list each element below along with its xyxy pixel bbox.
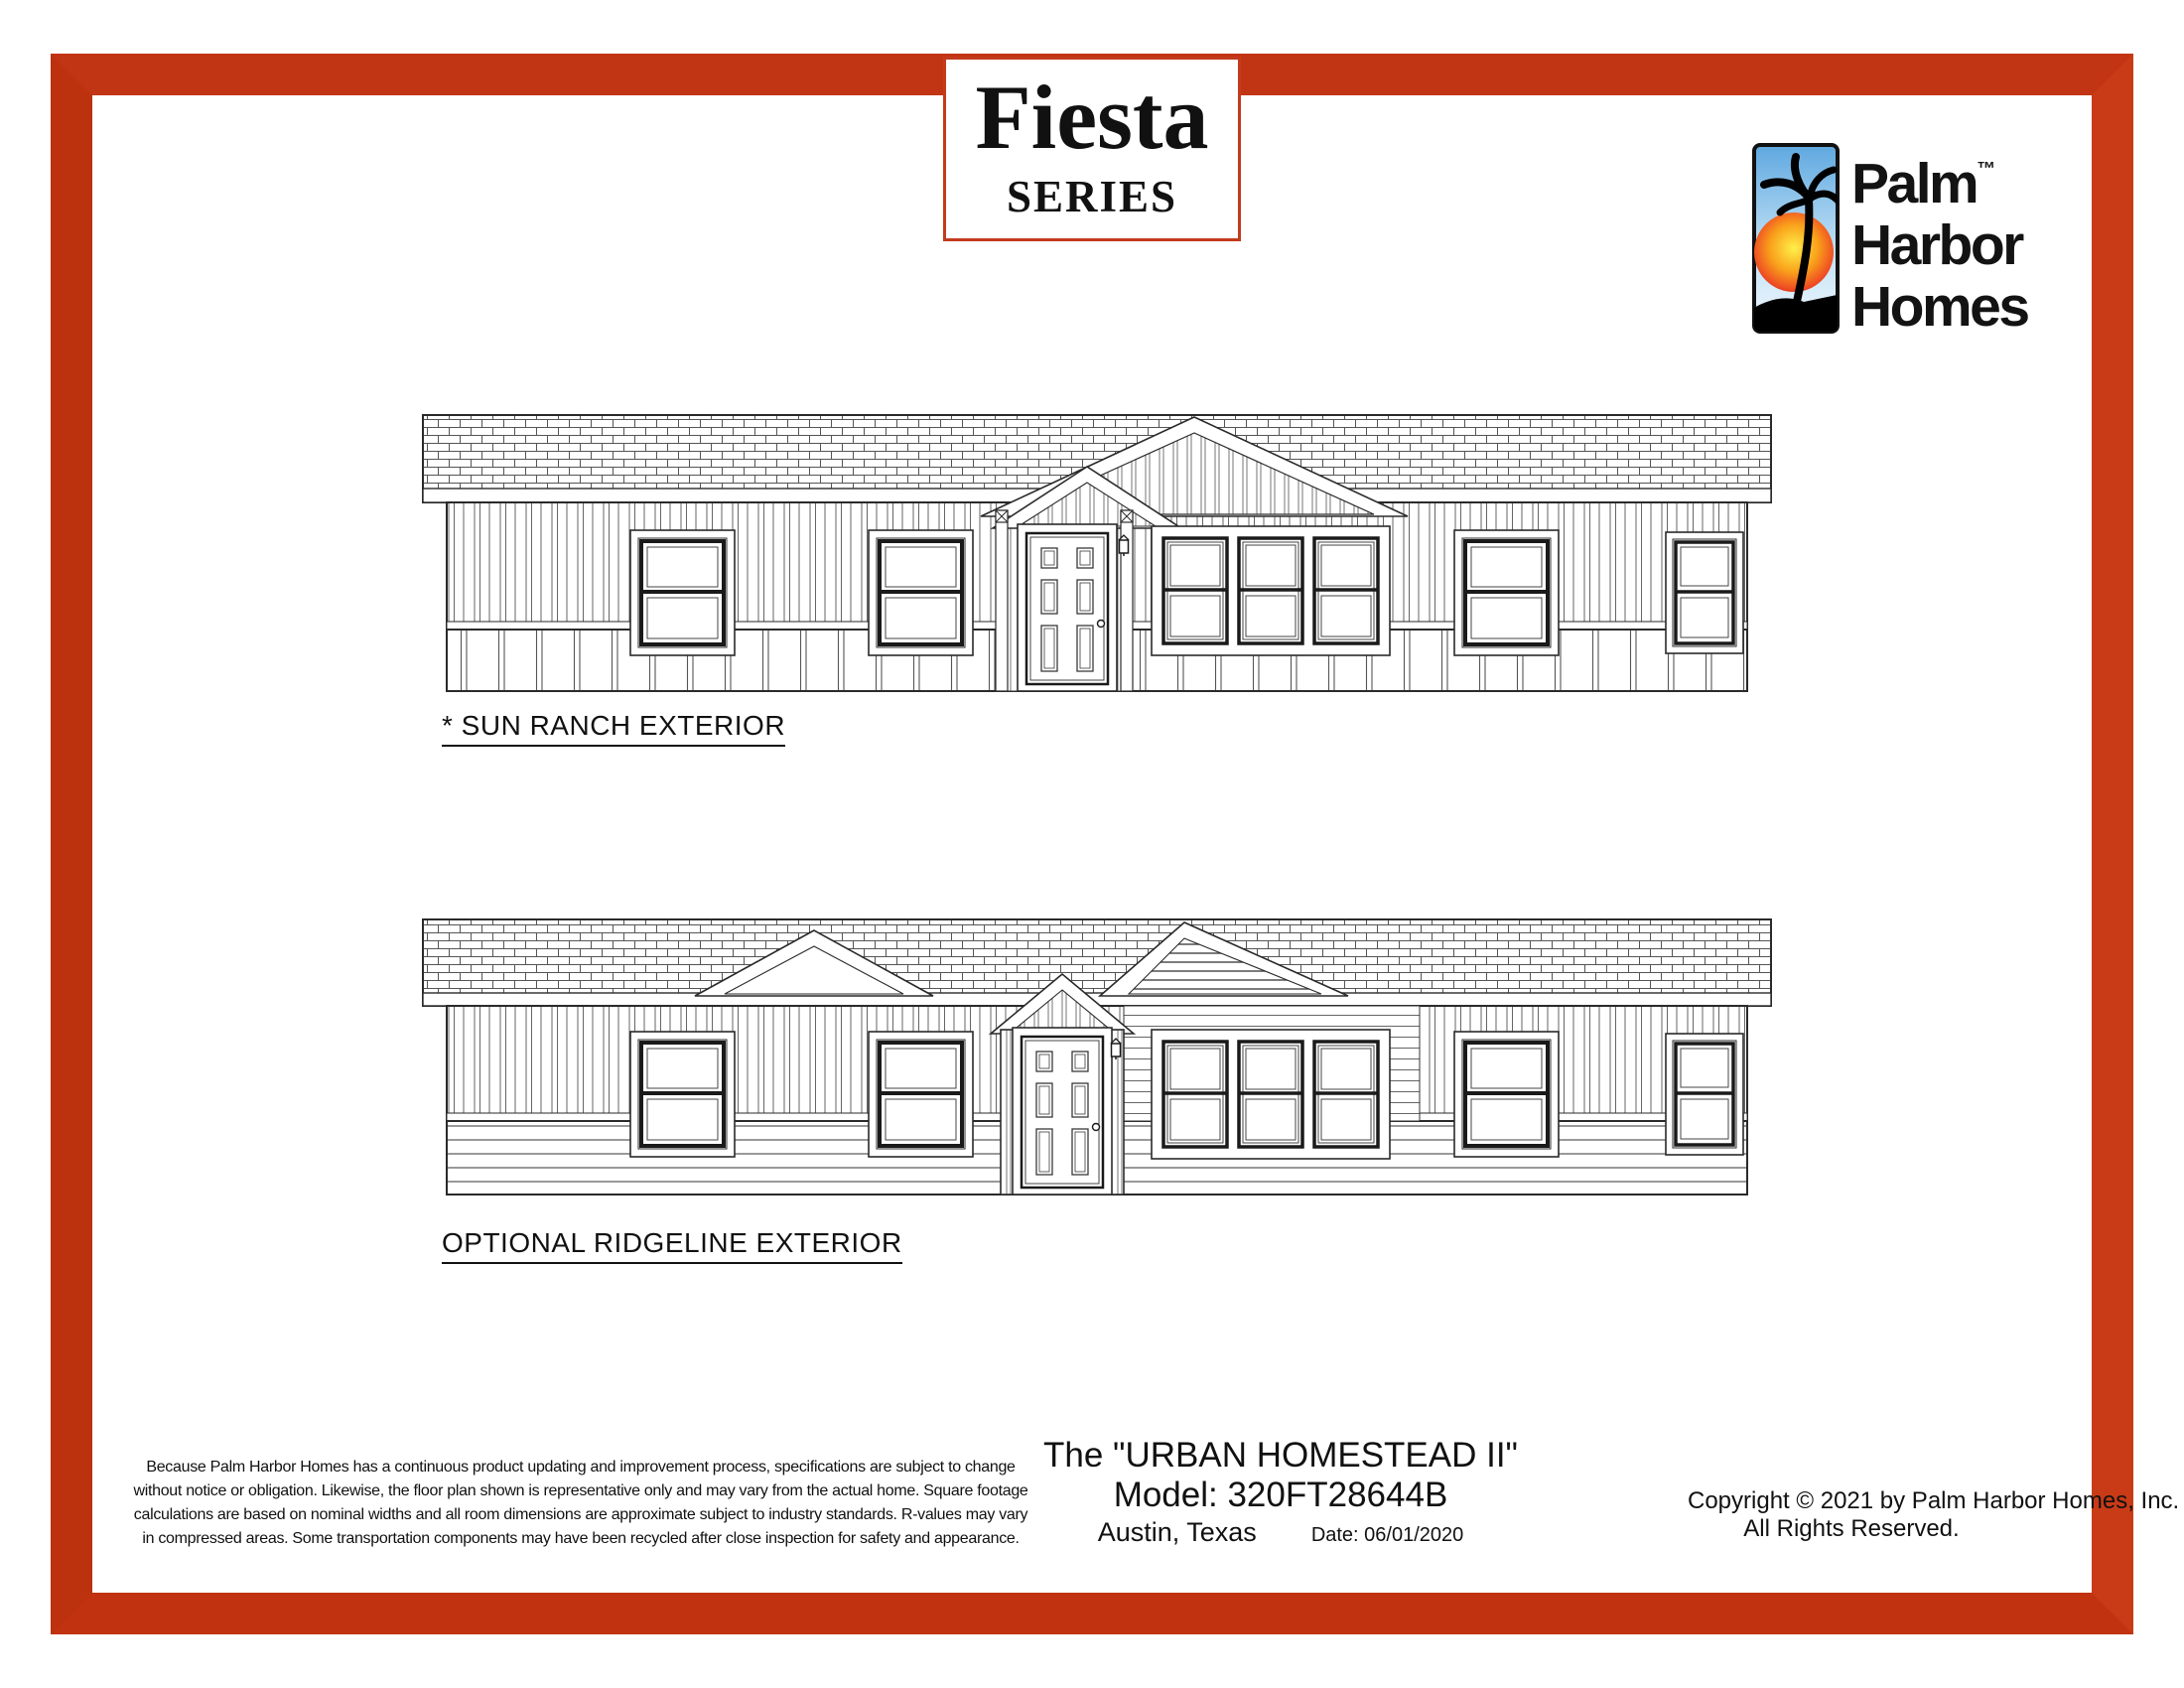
triple-window: [1152, 526, 1390, 655]
model-date: Date: 06/01/2020: [1311, 1524, 1463, 1547]
copyright-line-1: Copyright © 2021 by Palm Harbor Homes, I…: [1688, 1487, 2015, 1515]
copyright-line-2: All Rights Reserved.: [1688, 1515, 2015, 1543]
series-subtitle: SERIES: [946, 171, 1238, 222]
window: [869, 1032, 973, 1157]
window: [1666, 1034, 1743, 1155]
disclaimer-line: in compressed areas. Some transportation…: [114, 1527, 1047, 1551]
model-info: The "URBAN HOMESTEAD II" Model: 320FT286…: [1032, 1436, 1529, 1548]
elevation-label-sun-ranch: * SUN RANCH EXTERIOR: [442, 710, 785, 747]
window: [1454, 530, 1559, 655]
logo-wordmark: Palm™ Harbor Homes: [1851, 139, 2028, 338]
window: [630, 1032, 735, 1157]
elevation-label-ridgeline: OPTIONAL RIDGELINE EXTERIOR: [442, 1227, 902, 1264]
model-location: Austin, Texas: [1098, 1517, 1257, 1548]
triple-window: [1152, 1030, 1390, 1159]
series-badge: Fiesta SERIES: [943, 57, 1241, 241]
model-name: The "URBAN HOMESTEAD II": [1032, 1436, 1529, 1476]
logo-word-harbor: Harbor: [1851, 214, 2028, 276]
porch-post-left: [996, 510, 1008, 691]
window: [630, 530, 735, 655]
palm-tree-icon: [1752, 143, 1840, 334]
disclaimer-line: Because Palm Harbor Homes has a continuo…: [114, 1456, 1047, 1479]
logo-word-homes: Homes: [1851, 276, 2028, 338]
disclaimer-line: without notice or obligation. Likewise, …: [114, 1479, 1047, 1503]
porch-light: [1111, 1039, 1121, 1059]
sun-ranch-elevation-drawing: [422, 411, 1772, 699]
disclaimer-text: Because Palm Harbor Homes has a continuo…: [114, 1456, 1047, 1551]
porch-light: [1119, 535, 1129, 556]
window: [1454, 1032, 1559, 1157]
ridgeline-elevation-drawing: [422, 916, 1772, 1199]
model-number: Model: 320FT28644B: [1032, 1476, 1529, 1515]
disclaimer-line: calculations are based on nominal widths…: [114, 1503, 1047, 1527]
window: [1666, 532, 1743, 653]
palm-harbor-logo: Palm™ Harbor Homes: [1752, 139, 2090, 348]
window: [869, 530, 973, 655]
entry-door: [1018, 524, 1117, 691]
logo-word-palm: Palm: [1851, 152, 1977, 215]
series-title: Fiesta: [946, 71, 1238, 163]
copyright-notice: Copyright © 2021 by Palm Harbor Homes, I…: [1688, 1487, 2015, 1543]
entry-door: [1013, 1028, 1112, 1195]
trademark-symbol: ™: [1977, 159, 1995, 180]
